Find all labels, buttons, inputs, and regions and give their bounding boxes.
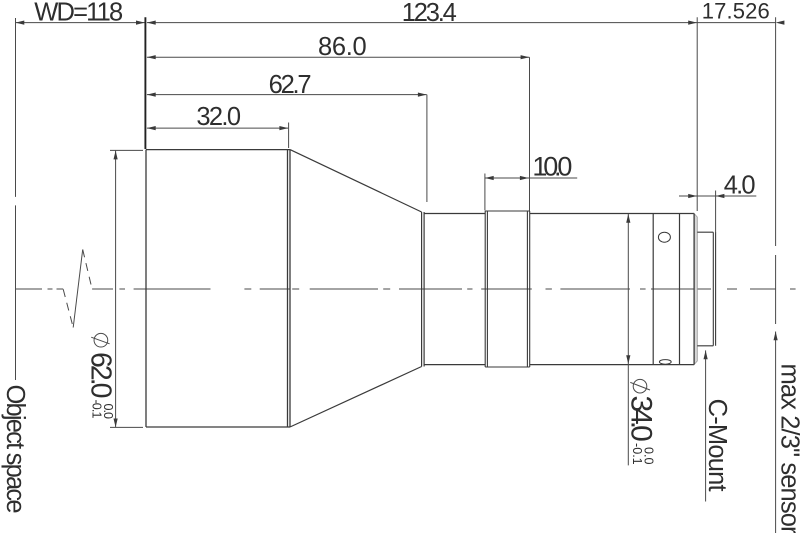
svg-text:123.4: 123.4	[402, 0, 457, 27]
svg-text:32.0: 32.0	[196, 103, 241, 131]
svg-text:10.0: 10.0	[532, 151, 572, 181]
svg-text:62.0: 62.0	[85, 352, 117, 399]
svg-text:4.0: 4.0	[724, 172, 756, 200]
svg-text:WD=118: WD=118	[34, 0, 123, 26]
svg-text:17.526: 17.526	[702, 0, 770, 23]
svg-text:86.0: 86.0	[318, 33, 367, 61]
svg-text:62.7: 62.7	[269, 71, 312, 99]
svg-text:max 2/3" sensor: max 2/3" sensor	[775, 364, 800, 533]
svg-text:34.0: 34.0	[625, 396, 658, 442]
svg-text:-0.1: -0.1	[90, 400, 104, 419]
svg-text:Object space: Object space	[1, 385, 29, 514]
svg-text:-0.1: -0.1	[630, 443, 644, 465]
svg-text:C-Mount: C-Mount	[703, 399, 731, 492]
